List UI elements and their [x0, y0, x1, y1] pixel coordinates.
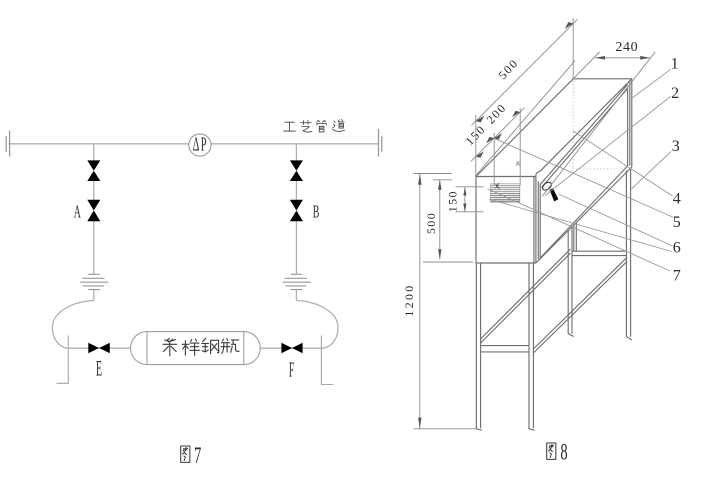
svg-text:240: 240 — [615, 40, 638, 55]
svg-text:1: 1 — [671, 56, 679, 73]
svg-text:B: B — [313, 203, 320, 223]
svg-text:F: F — [289, 357, 294, 382]
svg-text:3: 3 — [672, 138, 680, 155]
svg-text:E: E — [96, 356, 102, 381]
svg-text:8: 8 — [560, 440, 567, 465]
svg-text:1200: 1200 — [402, 283, 416, 316]
svg-text:2: 2 — [671, 85, 679, 102]
svg-text:500: 500 — [424, 212, 438, 234]
svg-text:7: 7 — [194, 444, 201, 469]
svg-text:7: 7 — [673, 268, 681, 285]
svg-text:6: 6 — [673, 239, 681, 256]
svg-text:A: A — [74, 203, 82, 223]
svg-text:4: 4 — [673, 191, 681, 208]
svg-text:150: 150 — [446, 190, 460, 212]
svg-text:5: 5 — [673, 214, 681, 231]
svg-text:ΔP: ΔP — [193, 134, 208, 155]
